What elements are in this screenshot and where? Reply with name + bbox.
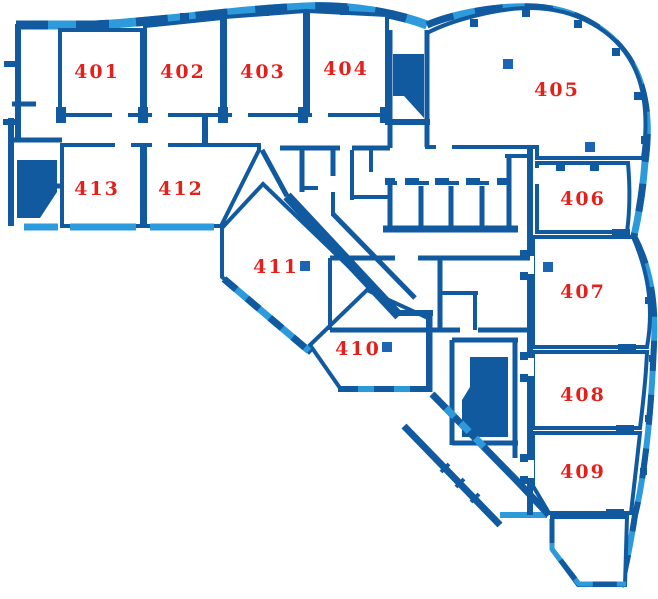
door-gap	[232, 111, 248, 119]
facade-cap	[612, 229, 630, 237]
elevator-cap	[497, 178, 511, 185]
room-label-409: 409	[560, 461, 606, 483]
facade-stub	[649, 355, 656, 362]
door-gap	[436, 143, 452, 151]
facade-cap	[618, 344, 636, 352]
door-gap	[152, 111, 168, 119]
room-label-413: 413	[74, 178, 120, 200]
arc-mullion	[522, 9, 530, 17]
column-marker	[543, 262, 553, 272]
room-label-405: 405	[534, 79, 580, 101]
room-label-406: 406	[560, 188, 606, 210]
floor-plan-svg: 401402403404405406407408409410411412413	[0, 0, 658, 599]
facade-cap	[616, 425, 634, 433]
door-gap	[526, 358, 534, 376]
room-label-412: 412	[158, 178, 204, 200]
door-gap	[152, 141, 168, 149]
door-jamb	[520, 454, 528, 462]
door-gap	[115, 141, 131, 149]
column-marker	[382, 342, 392, 352]
room-label-401: 401	[74, 61, 120, 83]
room-406-stub	[556, 163, 565, 171]
column-marker	[300, 261, 310, 271]
room-label-408: 408	[560, 384, 606, 406]
room-label-404: 404	[323, 58, 369, 80]
room-label-402: 402	[160, 61, 206, 83]
west-stair-fill	[17, 160, 57, 218]
core-partition-3	[440, 293, 478, 330]
door-gap	[312, 111, 328, 119]
room-label-407: 407	[560, 281, 606, 303]
room-label-410: 410	[335, 338, 381, 360]
arc-mullion	[634, 92, 642, 100]
facade-cap	[606, 509, 624, 517]
terrace-area	[552, 517, 627, 585]
facade-stub	[640, 468, 647, 475]
elevator-cap	[385, 178, 395, 185]
elevator-cap	[405, 178, 419, 185]
door-gap	[112, 111, 128, 119]
elevator-cap	[466, 178, 480, 185]
divider-foot	[56, 107, 66, 123]
band-stub	[260, 7, 269, 16]
stair-fill	[462, 357, 508, 437]
divider-foot	[218, 107, 228, 123]
divider-foot	[380, 107, 390, 123]
room-label-411: 411	[253, 256, 299, 278]
arc-mullion	[612, 48, 620, 56]
room-406-stub	[590, 163, 599, 171]
elevator-cap	[435, 178, 449, 185]
core-room-wall-4	[352, 148, 390, 200]
column-marker	[585, 142, 595, 152]
door-gap	[534, 168, 542, 184]
divider-foot	[298, 107, 308, 123]
facade-stub	[645, 415, 652, 422]
facade-stub	[645, 297, 652, 304]
floor-plan-stage: 401402403404405406407408409410411412413	[0, 0, 658, 599]
column-marker	[503, 59, 513, 69]
door-gap	[526, 460, 534, 478]
divider-foot	[138, 107, 148, 123]
room-label-403: 403	[240, 61, 286, 83]
arc-mullion	[641, 136, 649, 144]
door-jamb	[520, 352, 528, 360]
door-jamb	[520, 374, 528, 382]
elevator-dividers	[390, 156, 509, 229]
arc-mullion	[470, 19, 478, 27]
band-stub	[180, 13, 189, 22]
band-stub	[340, 6, 349, 15]
arc-mullion	[574, 20, 582, 28]
door-jamb	[520, 272, 528, 280]
band-stub	[100, 20, 109, 29]
shaft-fill	[393, 54, 424, 118]
